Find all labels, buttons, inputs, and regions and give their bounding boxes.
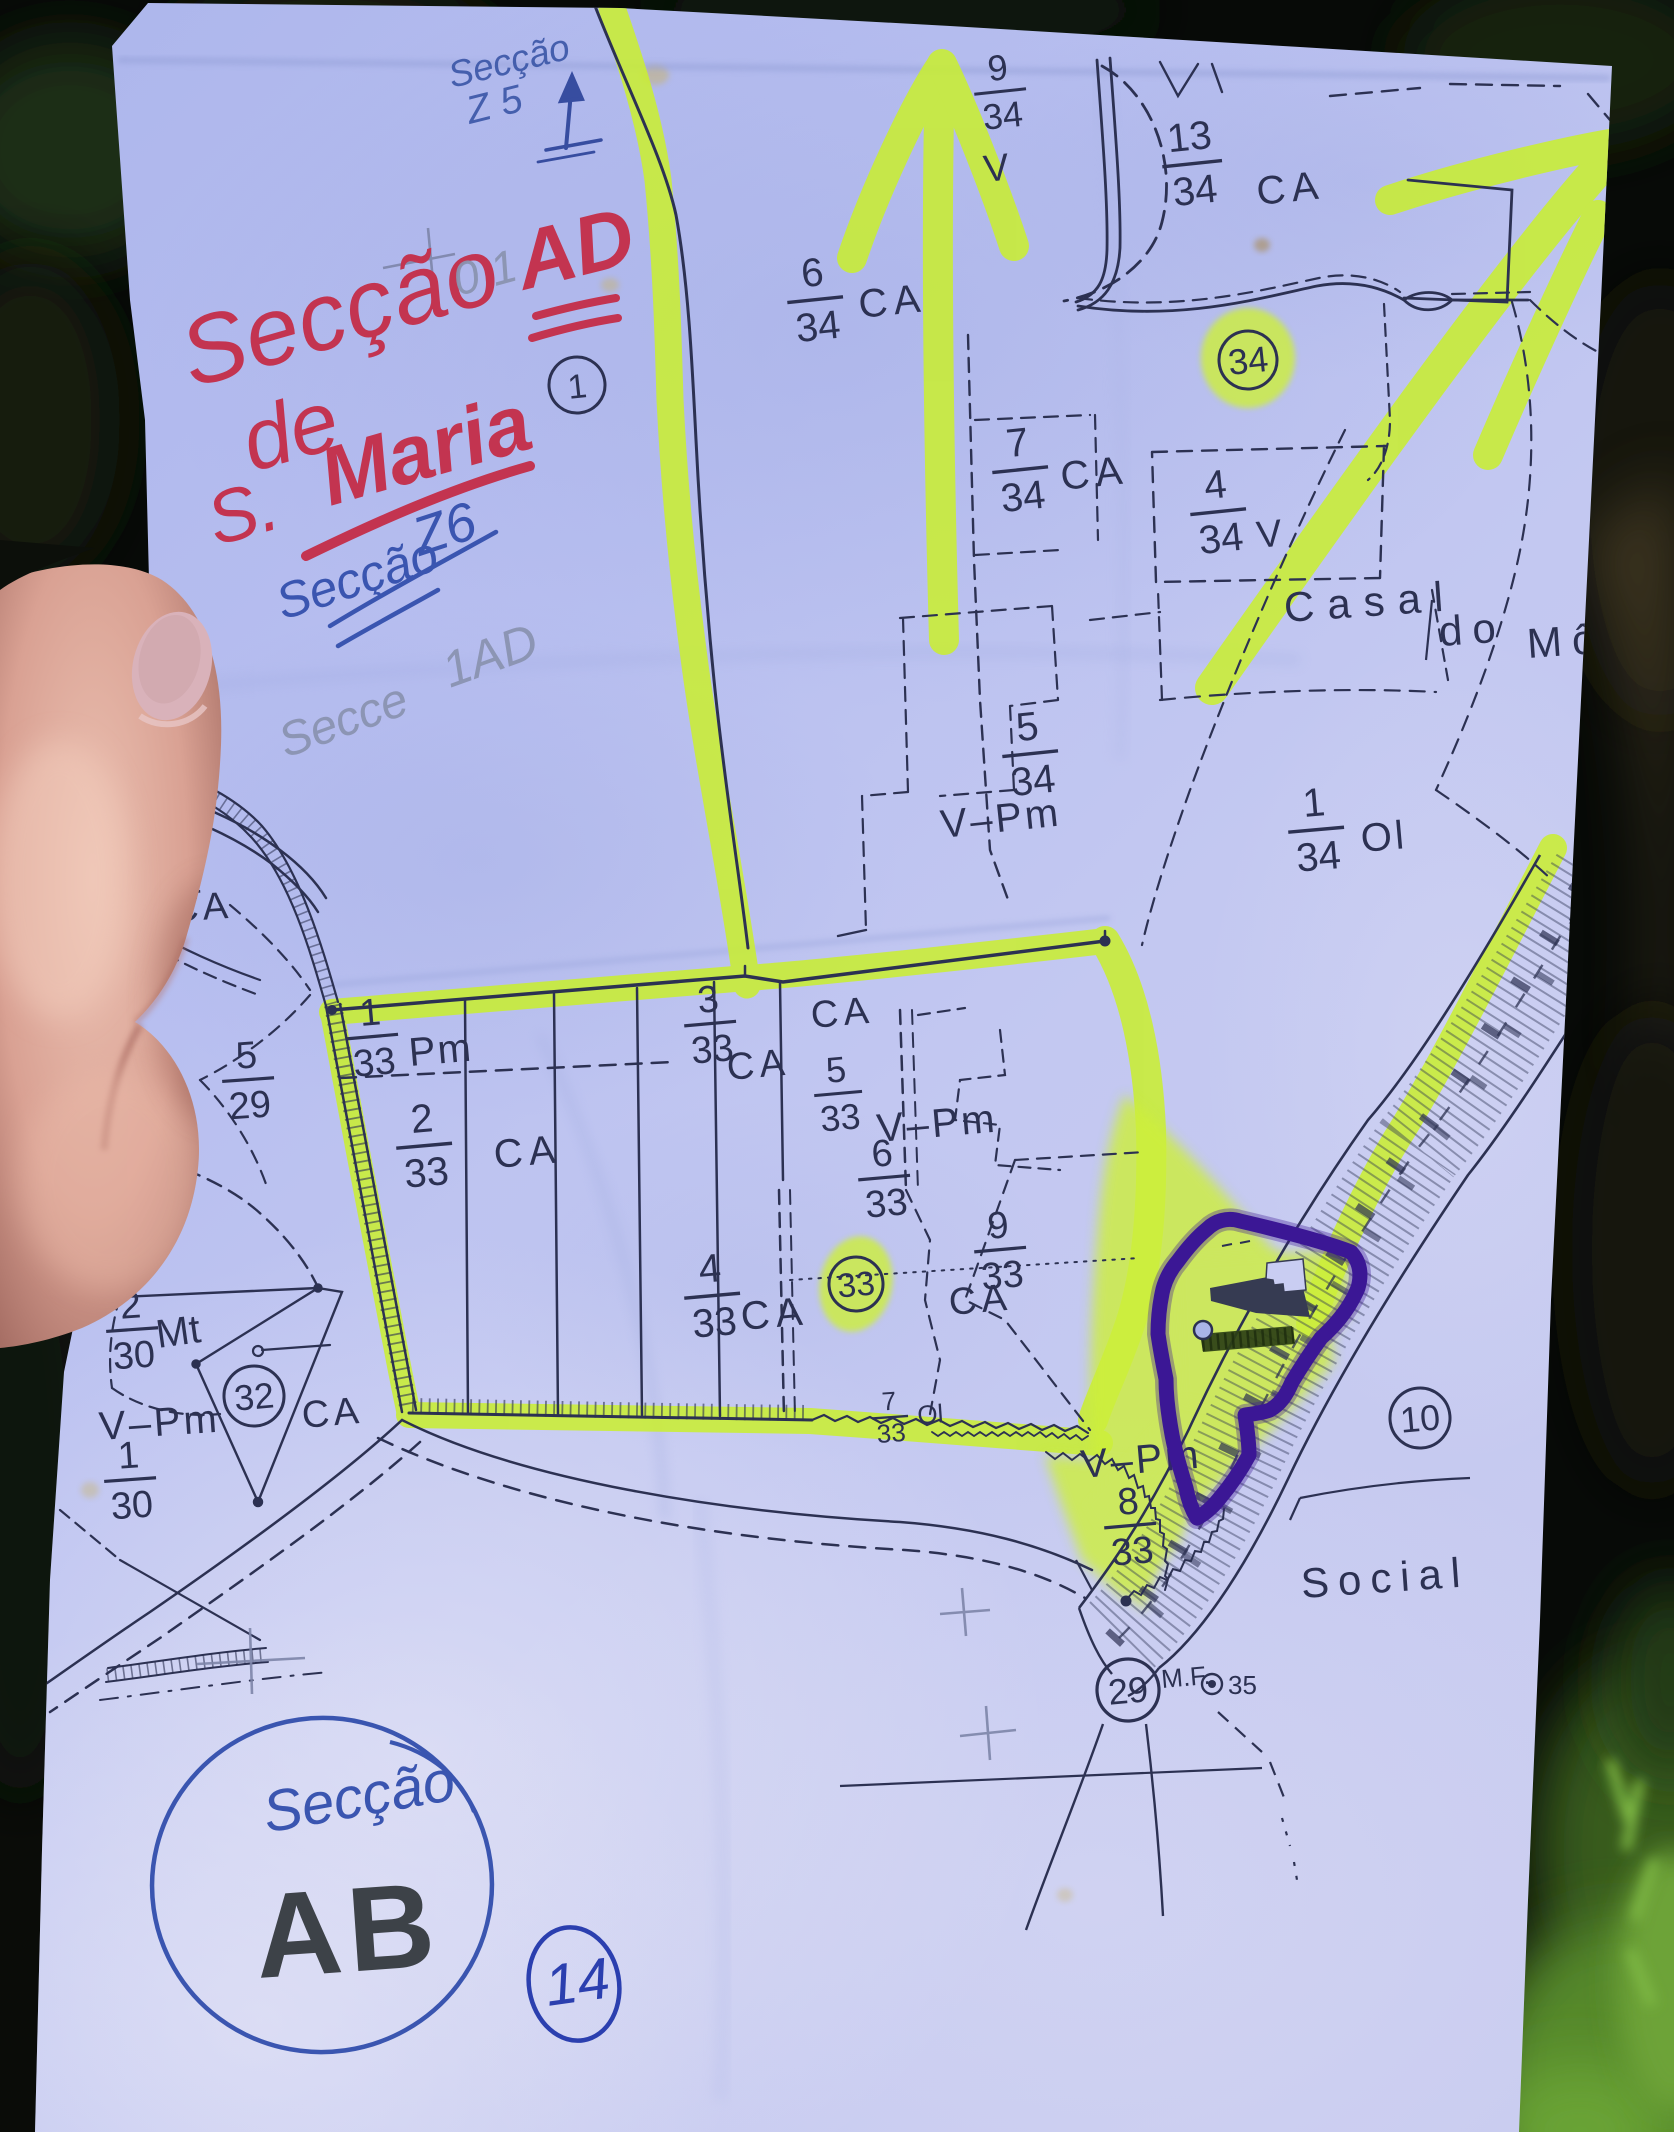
svg-text:10: 10: [1398, 1396, 1441, 1440]
svg-text:33: 33: [690, 1299, 738, 1347]
svg-text:CA: CA: [300, 1390, 364, 1437]
svg-text:6: 6: [799, 250, 826, 296]
svg-text:V: V: [1255, 512, 1285, 556]
svg-text:33: 33: [818, 1095, 861, 1139]
svg-text:1: 1: [1301, 780, 1327, 826]
svg-text:13: 13: [1165, 113, 1214, 161]
svg-text:7: 7: [881, 1386, 898, 1417]
svg-text:Ol: Ol: [916, 1398, 944, 1430]
svg-text:CA: CA: [856, 276, 928, 327]
svg-text:30: 30: [111, 1334, 156, 1379]
svg-text:32: 32: [232, 1374, 275, 1418]
svg-text:Pm: Pm: [407, 1026, 475, 1075]
svg-text:8: 8: [1116, 1480, 1141, 1524]
svg-text:4: 4: [1202, 462, 1229, 508]
svg-text:CA: CA: [739, 1289, 810, 1339]
svg-text:9: 9: [986, 1204, 1011, 1248]
svg-text:CA: CA: [492, 1127, 563, 1177]
svg-text:5: 5: [824, 1048, 848, 1091]
svg-text:34: 34: [794, 303, 843, 351]
svg-text:5: 5: [1014, 704, 1041, 750]
svg-text:1: 1: [566, 367, 589, 407]
svg-text:33: 33: [352, 1040, 398, 1086]
svg-text:14: 14: [541, 1946, 614, 2019]
svg-text:3: 3: [696, 978, 721, 1022]
svg-text:CA: CA: [1254, 163, 1326, 214]
svg-text:Ol: Ol: [1359, 813, 1409, 861]
svg-text:CA: CA: [947, 1277, 1013, 1324]
svg-text:34: 34: [1226, 338, 1270, 383]
svg-text:6: 6: [870, 1132, 895, 1176]
svg-text:V: V: [982, 146, 1012, 190]
svg-text:CA: CA: [1058, 448, 1130, 499]
svg-text:29: 29: [227, 1084, 272, 1129]
svg-text:AB: AB: [250, 1857, 444, 2004]
svg-text:Mt: Mt: [153, 1307, 203, 1357]
svg-text:2: 2: [409, 1096, 435, 1142]
svg-text:33: 33: [876, 1417, 907, 1449]
svg-text:33: 33: [864, 1181, 910, 1227]
svg-text:7: 7: [1004, 420, 1031, 466]
svg-text:34: 34: [1294, 833, 1342, 881]
svg-text:34: 34: [999, 473, 1048, 521]
svg-text:33: 33: [402, 1149, 450, 1197]
svg-text:34: 34: [1197, 515, 1246, 563]
svg-text:33: 33: [836, 1264, 877, 1305]
svg-text:29: 29: [1106, 1668, 1149, 1712]
svg-text:33: 33: [1110, 1529, 1156, 1575]
svg-text:9: 9: [986, 46, 1010, 89]
svg-text:34: 34: [1171, 167, 1220, 215]
svg-text:CA: CA: [809, 990, 875, 1037]
svg-text:CA: CA: [725, 1042, 791, 1089]
svg-text:1: 1: [358, 991, 383, 1035]
svg-text:30: 30: [109, 1484, 154, 1529]
svg-text:do: do: [1437, 603, 1507, 655]
svg-text:5: 5: [234, 1034, 258, 1077]
svg-text:35: 35: [1228, 1670, 1257, 1700]
svg-text:34: 34: [981, 93, 1025, 138]
svg-text:1: 1: [116, 1434, 140, 1477]
svg-text:4: 4: [697, 1246, 723, 1292]
